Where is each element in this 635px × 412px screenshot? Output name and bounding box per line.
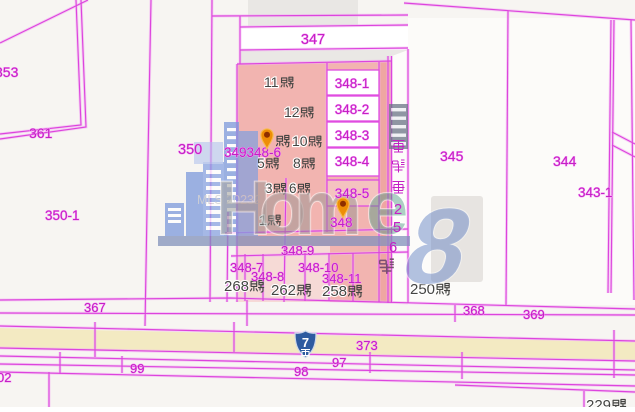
svg-text:345: 345 [440, 148, 464, 164]
svg-text:99: 99 [130, 361, 144, 376]
svg-text:97: 97 [332, 355, 346, 370]
svg-text:348-1: 348-1 [335, 76, 370, 91]
svg-text:348-2: 348-2 [335, 102, 370, 117]
svg-text:361: 361 [29, 125, 53, 141]
svg-text:7: 7 [302, 335, 309, 350]
svg-text:5: 5 [393, 219, 401, 236]
svg-text:353: 353 [0, 64, 19, 80]
svg-text:343-1: 343-1 [578, 185, 613, 200]
svg-text:348: 348 [330, 215, 353, 230]
svg-text:02: 02 [0, 370, 11, 385]
svg-text:10: 10 [292, 133, 308, 149]
svg-text:229: 229 [586, 397, 611, 407]
svg-text:12: 12 [284, 104, 300, 120]
svg-text:344: 344 [553, 153, 577, 169]
svg-text:347: 347 [301, 32, 325, 48]
svg-text:348-3: 348-3 [335, 128, 370, 143]
svg-text:6: 6 [389, 239, 397, 256]
svg-text:350: 350 [178, 142, 202, 158]
svg-text:369: 369 [523, 307, 545, 322]
svg-text:348-11: 348-11 [322, 271, 362, 286]
svg-text:348-4: 348-4 [335, 154, 370, 169]
svg-text:373: 373 [356, 338, 378, 353]
svg-text:349348-6: 349348-6 [224, 145, 281, 160]
svg-text:98: 98 [294, 364, 308, 379]
svg-text:268: 268 [224, 278, 249, 295]
svg-text:348-8: 348-8 [251, 269, 284, 284]
svg-text:2: 2 [394, 201, 402, 218]
svg-text:348-9: 348-9 [281, 243, 314, 258]
svg-text:11: 11 [264, 74, 279, 90]
svg-text:367: 367 [84, 300, 106, 315]
svg-text:350-1: 350-1 [45, 208, 80, 223]
svg-text:368: 368 [463, 303, 485, 318]
svg-text:262: 262 [271, 282, 296, 299]
